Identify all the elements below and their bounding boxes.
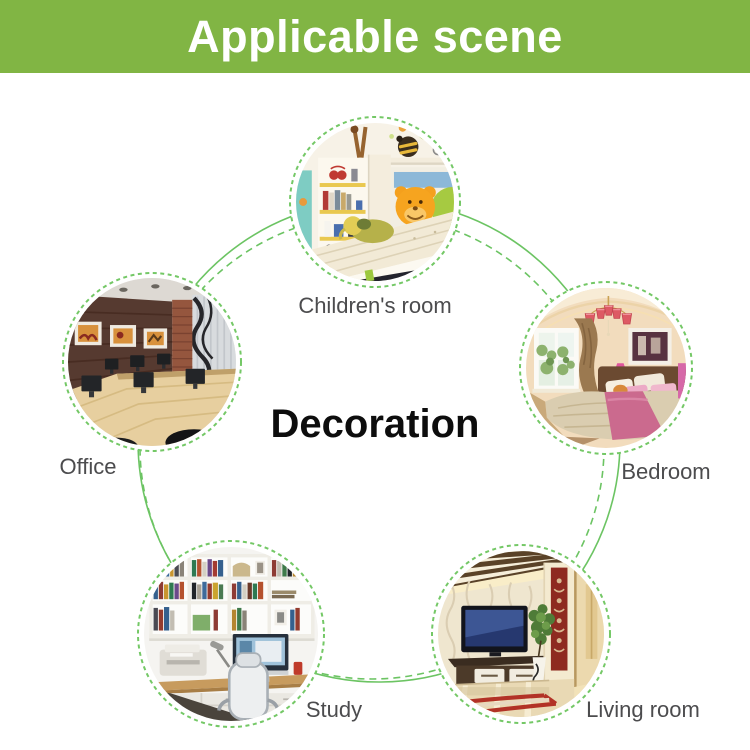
label-office: Office	[59, 454, 116, 480]
page: Applicable scene	[0, 0, 750, 750]
children-room-photo	[296, 123, 454, 281]
office-photo	[68, 278, 236, 446]
label-study: Study	[306, 697, 362, 723]
center-title: Decoration	[271, 402, 480, 447]
living-room-photo	[438, 551, 604, 717]
label-living-room: Living room	[586, 697, 700, 723]
label-children-room: Children's room	[298, 293, 451, 319]
study-photo	[144, 547, 318, 721]
bedroom-photo	[526, 288, 686, 448]
label-bedroom: Bedroom	[621, 459, 710, 485]
